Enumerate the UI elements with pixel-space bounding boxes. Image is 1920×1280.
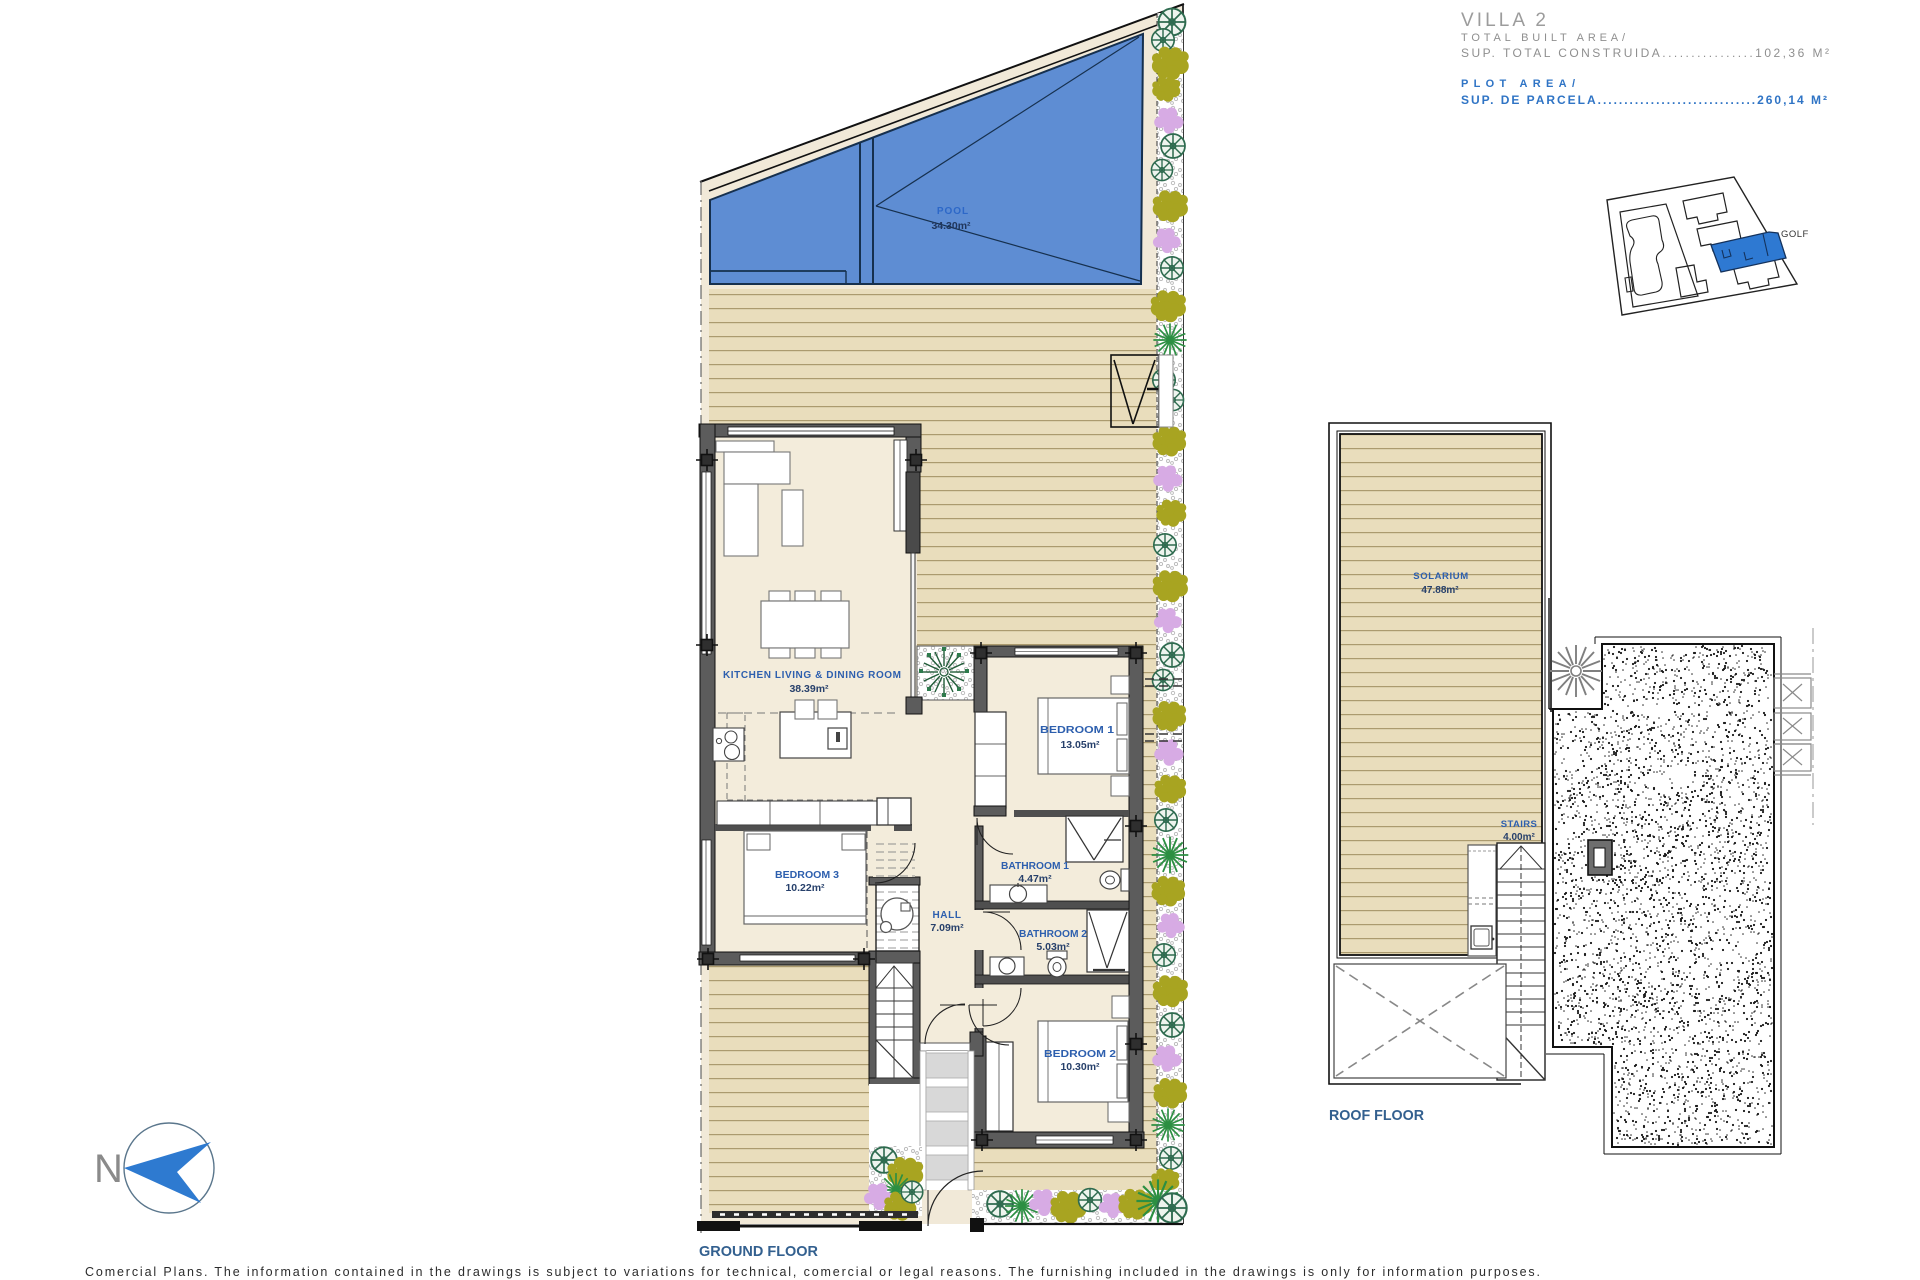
svg-text:ROOF FLOOR: ROOF FLOOR	[1329, 1107, 1424, 1124]
svg-text:STAIRS: STAIRS	[1501, 819, 1538, 830]
svg-text:KITCHEN LIVING & DINING ROOM: KITCHEN LIVING & DINING ROOM	[723, 670, 901, 681]
svg-text:4.00m²: 4.00m²	[1503, 832, 1535, 843]
svg-text:38.39m²: 38.39m²	[789, 683, 829, 695]
svg-text:Comercial Plans. The informati: Comercial Plans. The information contain…	[85, 1265, 1540, 1279]
svg-text:10.30m²: 10.30m²	[1060, 1061, 1100, 1073]
svg-text:BEDROOM 2: BEDROOM 2	[1044, 1049, 1117, 1060]
svg-text:BEDROOM 3: BEDROOM 3	[775, 870, 839, 881]
svg-text:GOLF: GOLF	[1781, 229, 1809, 240]
svg-text:SUP. TOTAL CONSTRUIDA.........: SUP. TOTAL CONSTRUIDA................102…	[1461, 46, 1829, 60]
svg-text:5.03m²: 5.03m²	[1036, 941, 1070, 953]
svg-text:TOTAL BUILT AREA/: TOTAL BUILT AREA/	[1461, 32, 1626, 44]
svg-text:SOLARIUM: SOLARIUM	[1413, 571, 1468, 582]
svg-text:HALL: HALL	[932, 910, 961, 921]
svg-text:N: N	[94, 1147, 123, 1191]
svg-text:POOL: POOL	[937, 206, 969, 217]
svg-text:BATHROOM 2: BATHROOM 2	[1019, 929, 1087, 940]
svg-text:4.47m²: 4.47m²	[1018, 873, 1052, 885]
svg-text:BEDROOM 1: BEDROOM 1	[1040, 725, 1115, 736]
svg-text:47.88m²: 47.88m²	[1421, 585, 1459, 596]
svg-text:34.30m²: 34.30m²	[931, 220, 971, 232]
svg-text:7.09m²: 7.09m²	[930, 922, 964, 934]
svg-text:GROUND FLOOR: GROUND FLOOR	[699, 1243, 818, 1260]
svg-text:13.05m²: 13.05m²	[1060, 739, 1100, 751]
svg-text:10.22m²: 10.22m²	[785, 882, 825, 894]
svg-text:BATHROOM 1: BATHROOM 1	[1001, 861, 1069, 872]
